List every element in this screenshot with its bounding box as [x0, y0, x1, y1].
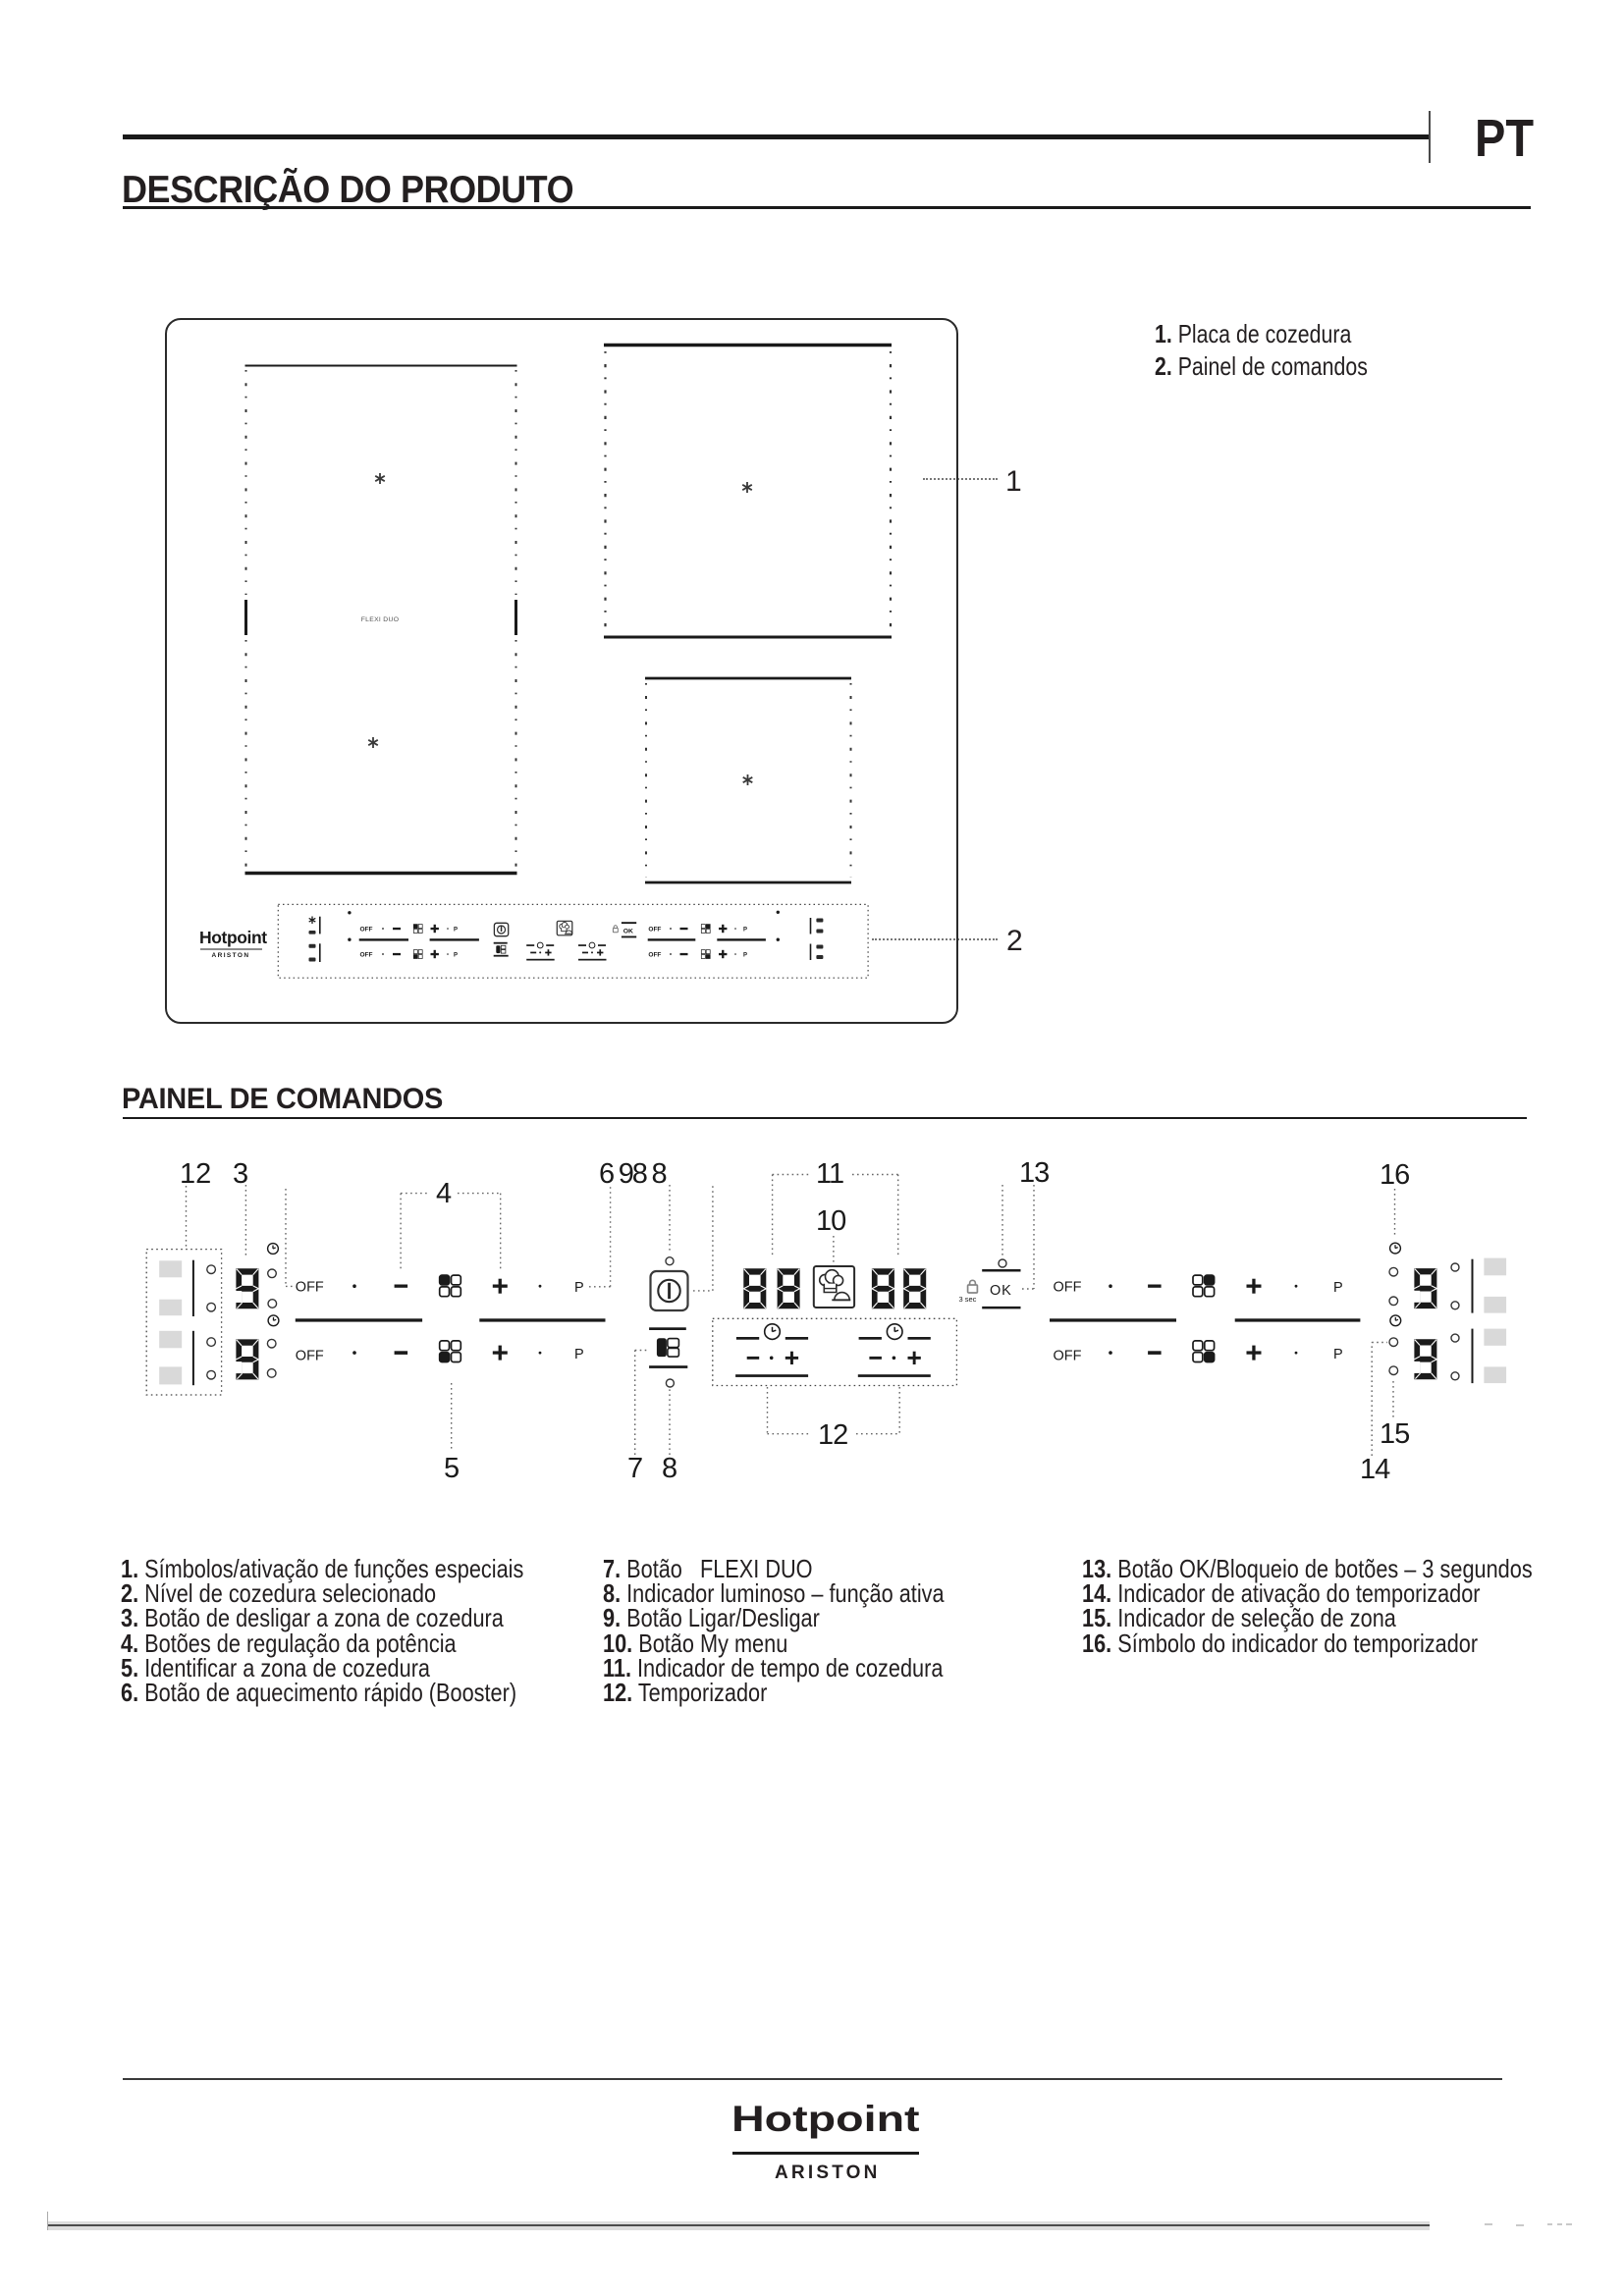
svg-text:P: P [574, 1347, 584, 1362]
svg-text:6 98 8: 6 98 8 [599, 1158, 666, 1190]
svg-text:5: 5 [444, 1453, 460, 1484]
svg-text:11: 11 [816, 1158, 843, 1190]
svg-text:Hotpoint: Hotpoint [199, 928, 267, 947]
svg-text:P: P [743, 953, 747, 959]
svg-text:16: 16 [1380, 1159, 1409, 1191]
svg-text:OK: OK [623, 929, 633, 935]
svg-text:OFF: OFF [1054, 1349, 1082, 1364]
svg-text:13: 13 [1019, 1158, 1049, 1189]
svg-text:OFF: OFF [296, 1349, 324, 1364]
svg-text:14: 14 [1360, 1454, 1390, 1485]
svg-text:1 2: 1 2 [180, 1158, 210, 1190]
svg-text:P: P [1333, 1347, 1343, 1362]
svg-text:P: P [454, 928, 458, 934]
svg-text:4: 4 [436, 1178, 452, 1209]
svg-text:OFF: OFF [360, 952, 373, 959]
svg-text:P: P [743, 928, 747, 934]
svg-text:10: 10 [816, 1205, 845, 1237]
svg-text:15: 15 [1380, 1418, 1409, 1450]
svg-text:12: 12 [818, 1419, 847, 1451]
svg-text:OK: OK [990, 1283, 1012, 1299]
svg-text:ARISTON: ARISTON [212, 952, 250, 959]
svg-text:P: P [454, 953, 458, 959]
svg-text:P: P [574, 1280, 584, 1296]
svg-text:3 sec: 3 sec [959, 1295, 977, 1304]
svg-text:P: P [1333, 1280, 1343, 1296]
svg-text:OFF: OFF [648, 952, 661, 959]
svg-text:FLEXI DUO: FLEXI DUO [361, 616, 400, 623]
svg-text:OFF: OFF [296, 1280, 324, 1296]
svg-text:OFF: OFF [1054, 1280, 1082, 1296]
svg-text:OFF: OFF [648, 927, 661, 934]
svg-text:7: 7 [627, 1453, 643, 1484]
svg-text:8: 8 [662, 1453, 677, 1484]
svg-text:OFF: OFF [360, 927, 373, 934]
